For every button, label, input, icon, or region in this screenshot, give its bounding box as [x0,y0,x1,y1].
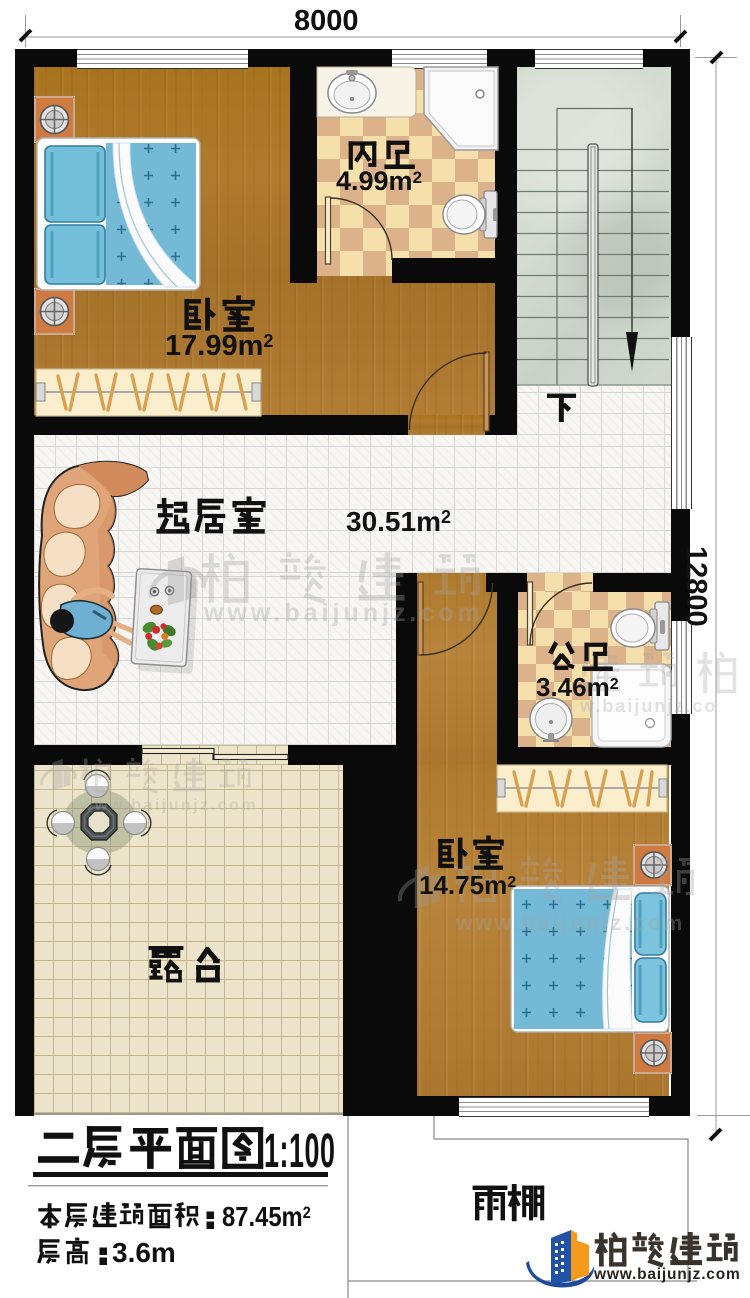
svg-text:www.baijunjz.com: www.baijunjz.com [79,797,258,814]
svg-text:www.baijunjz.com: www.baijunjz.com [593,1266,741,1283]
svg-text:www.baijunjz.com: www.baijunjz.com [203,599,484,627]
svg-text:www.baijunjz.com: www.baijunjz.com [455,912,685,935]
